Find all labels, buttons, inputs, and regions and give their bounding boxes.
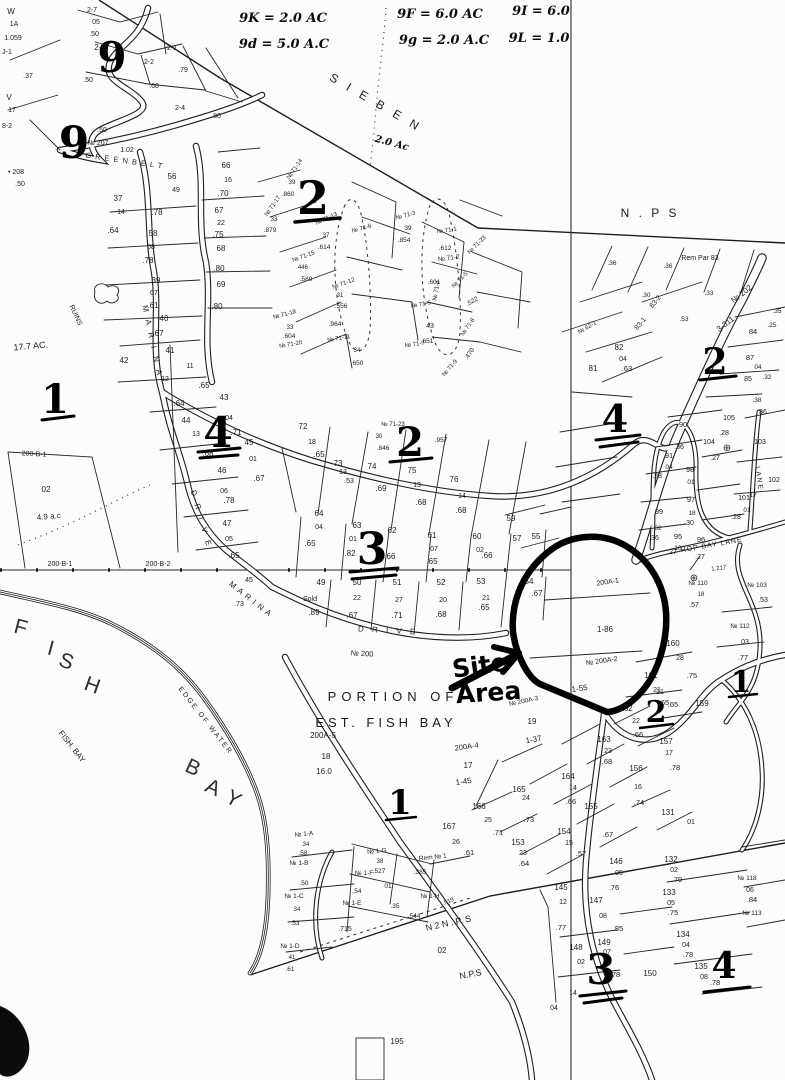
- map-label: 04: [225, 415, 233, 422]
- map-label: 07: [150, 290, 158, 297]
- map-label: 27: [395, 597, 403, 604]
- map-label: .84: [747, 895, 757, 904]
- map-label: 01: [687, 819, 695, 826]
- map-label: 51: [393, 578, 402, 587]
- map-label: 156: [629, 764, 643, 773]
- map-label: № 113: [742, 910, 762, 917]
- map-label: .50: [97, 127, 107, 134]
- map-label: 2.0 Ac: [372, 134, 409, 154]
- map-label: .78: [223, 496, 235, 505]
- map-label: .32: [762, 374, 771, 381]
- map-label: .614: [318, 244, 331, 251]
- map-label: .75: [668, 908, 678, 917]
- map-label: .78: [610, 970, 620, 979]
- map-label: 163: [597, 735, 611, 744]
- map-label: 05: [225, 536, 233, 543]
- map-label: .846: [377, 445, 390, 452]
- map-label: № 71-3: [395, 209, 417, 221]
- map-label: N.P.S: [459, 967, 483, 981]
- map-label: № 1-E: [343, 900, 363, 907]
- map-label: 04: [682, 942, 690, 949]
- map-label: 195: [390, 1037, 404, 1046]
- map-label: 24: [522, 795, 530, 802]
- map-label: 18: [322, 752, 331, 761]
- map-label: 19: [528, 717, 537, 726]
- map-label: 01: [384, 883, 392, 890]
- map-label: .28: [652, 473, 662, 480]
- map-label: .57: [689, 602, 699, 609]
- map-label: № 200: [351, 648, 374, 658]
- map-label: .63: [622, 364, 632, 373]
- map-label: .58: [298, 850, 307, 857]
- map-label: .68: [455, 506, 467, 515]
- map-label: № 1-H: [420, 893, 440, 900]
- map-label: .53: [290, 920, 299, 927]
- map-label: .61: [464, 848, 474, 857]
- map-label: 85: [744, 376, 752, 383]
- map-label: S: [56, 648, 79, 675]
- shoreline-fill: [0, 592, 268, 973]
- map-label: 101: [738, 495, 750, 502]
- map-label: 155: [584, 802, 598, 811]
- map-label: .67: [531, 589, 543, 598]
- map-label: .50: [89, 31, 99, 38]
- map-label: .68: [435, 610, 447, 619]
- map-label: № 1-F: [355, 870, 374, 877]
- map-label: 1-45: [455, 776, 473, 787]
- map-label: 22: [353, 595, 361, 602]
- map-label: .65: [478, 603, 490, 612]
- map-label: 45: [245, 438, 254, 447]
- map-label: 49: [317, 578, 326, 587]
- map-label: 54: [525, 577, 534, 586]
- map-label: .76: [609, 883, 619, 892]
- map-label: J-1: [2, 49, 12, 56]
- map-label: 08: [700, 974, 708, 981]
- map-label: 44: [182, 416, 191, 425]
- map-label: 07: [430, 546, 438, 553]
- map-label: 06: [220, 488, 228, 495]
- map-label: 25: [484, 817, 492, 824]
- map-label: 39: [405, 226, 412, 232]
- map-label: .27: [710, 455, 720, 462]
- map-label: 02: [577, 959, 585, 966]
- map-label: .73: [524, 815, 534, 824]
- map-label: .65: [426, 557, 438, 566]
- map-label: .64: [173, 399, 185, 408]
- map-label: 02: [438, 946, 447, 955]
- map-label: № 1-C: [284, 893, 304, 900]
- map-label: 16: [224, 177, 232, 184]
- map-label: .65: [228, 551, 240, 560]
- map-label: .35: [772, 308, 781, 315]
- map-label: .27: [667, 549, 677, 556]
- map-label: 200-B-1: [48, 561, 73, 568]
- south-boundary-line: [250, 843, 785, 975]
- map-label: 1.02: [120, 147, 134, 154]
- map-label: 64: [315, 509, 324, 518]
- map-label: 16: [634, 784, 642, 791]
- map-label: .28: [719, 430, 729, 437]
- map-label: 159: [695, 699, 709, 708]
- map-label: № 1-D: [280, 943, 300, 950]
- map-label: RUINS: [68, 304, 84, 327]
- map-label: 04: [754, 364, 762, 371]
- map-label: .77: [738, 653, 748, 662]
- map-label: .36: [649, 535, 659, 542]
- map-label: 135: [694, 962, 708, 971]
- map-label: .65: [198, 381, 210, 390]
- map-label: .79: [178, 67, 188, 74]
- map-label: 166: [472, 802, 486, 811]
- map-label: 160: [666, 639, 680, 648]
- map-label: F: [12, 615, 32, 641]
- map-label: 74: [368, 462, 377, 471]
- map-label: 104: [703, 439, 715, 446]
- map-label: .612: [439, 245, 452, 252]
- map-label: .50: [83, 77, 93, 84]
- map-label: 63: [353, 521, 362, 530]
- map-label: Y: [222, 785, 247, 813]
- map-label: 200A-4: [454, 740, 479, 752]
- map-label: .589: [300, 276, 313, 283]
- map-label: 82: [615, 343, 624, 352]
- shoreline: [0, 592, 268, 973]
- map-label: S I E B E N: [327, 70, 425, 134]
- map-label: .385: [414, 869, 427, 876]
- map-label: .68: [415, 498, 427, 507]
- map-label: 17: [665, 750, 673, 757]
- map-label: 2: [702, 341, 727, 383]
- map-label: .35: [390, 903, 399, 910]
- map-label: 41: [166, 346, 175, 355]
- map-label: 1: [41, 376, 69, 423]
- map-label: .556: [335, 303, 348, 310]
- map-label: .33: [704, 290, 713, 297]
- map-label: 9d = 5.0 A.C: [239, 37, 330, 52]
- map-label: .73: [234, 601, 244, 608]
- map-label: 9: [59, 118, 90, 169]
- map-label: .80: [213, 264, 225, 273]
- map-label: 148: [569, 943, 583, 952]
- map-label: .78: [683, 950, 693, 959]
- map-label: 52: [437, 578, 446, 587]
- map-label: .78: [710, 978, 720, 987]
- map-label: 13: [192, 431, 200, 438]
- map-label: 42: [120, 356, 129, 365]
- map-label: .67: [603, 830, 613, 839]
- map-label: 1.059: [4, 35, 22, 42]
- map-label: .38: [752, 397, 761, 404]
- map-label: H: [81, 672, 105, 699]
- map-label: 90: [679, 420, 687, 429]
- map-label: 02: [670, 867, 678, 874]
- map-label: 13: [413, 482, 421, 489]
- map-label: 23: [519, 850, 527, 857]
- map-label: 18: [698, 592, 705, 598]
- map-label: 14: [569, 990, 577, 997]
- map-label: .65: [668, 700, 678, 709]
- map-label: 9I = 6.0: [512, 4, 570, 19]
- survey-map: PORTION OF EST. FISH BAY: [0, 0, 785, 1080]
- map-label: .79: [672, 875, 682, 884]
- map-label: 01: [349, 536, 357, 543]
- map-label: 3: [357, 524, 388, 575]
- map-label: 81: [589, 364, 598, 373]
- map-label: 72: [299, 422, 308, 431]
- map-label: 17.7 AC.: [13, 340, 48, 353]
- map-label: 87: [746, 353, 754, 362]
- map-label: D R I V E: [189, 489, 214, 549]
- map-label: 06: [746, 887, 754, 894]
- map-label: .50: [299, 880, 308, 887]
- map-label: 01: [249, 456, 257, 463]
- map-label: 4.9 a.c: [36, 511, 61, 522]
- map-label: 9F = 6.0 AC: [397, 7, 483, 22]
- drainage-gut-east: [422, 199, 461, 355]
- map-label: 50: [353, 578, 362, 587]
- map-label: 08: [147, 244, 155, 251]
- map-label: № 1-G: [367, 847, 387, 856]
- map-label: 1.217: [711, 565, 727, 573]
- map-label: • 208: [8, 169, 24, 176]
- map-label: 03: [741, 639, 749, 646]
- map-label: HOP BAY LANE: [680, 537, 743, 555]
- map-label: 30: [376, 434, 383, 440]
- map-label: .25: [767, 322, 776, 329]
- map-label: 83-1: [634, 316, 648, 331]
- map-label: 2-2: [144, 59, 154, 66]
- map-label: 8-2: [2, 123, 12, 130]
- map-label: 145: [554, 883, 568, 892]
- map-label: .80: [211, 113, 221, 120]
- map-label: 04: [550, 1005, 558, 1012]
- map-label: 47: [223, 519, 232, 528]
- map-label: .64: [519, 859, 529, 868]
- map-label: .36: [607, 260, 616, 267]
- map-label: 43: [220, 393, 229, 402]
- map-label: № 200A-2: [585, 656, 618, 667]
- map-label: .82: [344, 549, 356, 558]
- map-label: .54: [352, 888, 361, 895]
- map-label: A: [202, 774, 226, 802]
- map-label: 49: [172, 187, 180, 194]
- map-label: 01: [743, 507, 751, 514]
- map-label: 05: [615, 870, 623, 877]
- map-label: № 1-B: [290, 860, 309, 867]
- map-label: № 71-1: [436, 226, 458, 236]
- map-label: .28: [731, 514, 741, 521]
- map-label: 38: [377, 859, 384, 865]
- map-label: 4: [602, 396, 628, 441]
- map-label: .68: [202, 449, 214, 458]
- map-label: 67: [215, 206, 224, 215]
- map-label: № 71-18: [272, 308, 297, 321]
- map-label: .67: [152, 329, 164, 338]
- map-label: 02: [42, 485, 51, 494]
- map-label: .78: [670, 763, 680, 772]
- map-label: 28: [676, 655, 684, 662]
- map-label: 86: [759, 409, 767, 416]
- map-label: 99: [655, 507, 663, 516]
- map-label: .68: [149, 83, 159, 90]
- map-label: V: [6, 93, 12, 102]
- map-label: 15: [565, 840, 573, 847]
- map-label: 132: [664, 855, 678, 864]
- map-label: 16.0: [316, 767, 332, 776]
- map-label: 55: [532, 532, 541, 541]
- map-label: 26: [452, 839, 460, 846]
- map-label: PORTION OF: [328, 689, 459, 704]
- map-label: .522: [465, 295, 480, 308]
- map-label: 2-1: [167, 45, 177, 52]
- map-label: .67: [346, 611, 358, 620]
- map-label: 18: [688, 510, 696, 517]
- map-label: 05: [667, 900, 675, 907]
- map-label: № 103: [747, 582, 767, 589]
- map-label: 98: [686, 465, 694, 474]
- map-label: .61: [147, 301, 159, 310]
- map-label: N . P S: [621, 206, 680, 220]
- scan-artifacts: [0, 1006, 29, 1077]
- map-label: 157: [659, 737, 673, 746]
- map-label: 37: [114, 194, 123, 203]
- map-label: 83-2: [649, 294, 663, 309]
- map-label: .71: [493, 828, 503, 837]
- map-label: .85: [613, 924, 623, 933]
- map-label: 04: [665, 464, 673, 471]
- map-label: .50: [15, 181, 25, 188]
- map-label: .53: [344, 478, 354, 485]
- map-label: 60: [473, 532, 482, 541]
- map-label: 134: [676, 930, 690, 939]
- shoreline-center: [0, 592, 268, 973]
- map-label: .527: [373, 868, 386, 875]
- map-label: 75: [408, 466, 417, 475]
- map-label: D R I V E: [358, 624, 419, 636]
- map-label: № 71-2: [438, 253, 461, 263]
- site-area-outline: [513, 537, 667, 712]
- map-label: .544: [408, 913, 421, 920]
- map-label: .78: [151, 208, 163, 217]
- map-label: .957: [435, 437, 448, 444]
- map-label: 37: [323, 233, 330, 239]
- map-label: .75: [687, 671, 697, 680]
- map-label: .71: [230, 428, 242, 437]
- map-label: .53: [679, 316, 688, 323]
- map-label: 22: [217, 220, 225, 227]
- map-label: № 71-23: [381, 421, 405, 428]
- map-label: 21: [656, 689, 664, 696]
- map-label: .446: [296, 265, 308, 271]
- map-label: 34: [354, 348, 361, 354]
- map-label: .66: [481, 551, 493, 560]
- map-label: I: [45, 637, 59, 661]
- map-label: № 1-A: [294, 830, 314, 839]
- map-label: Rem Par 83: [681, 255, 718, 262]
- map-label: .36: [674, 444, 684, 451]
- map-label: № 62-1: [577, 319, 598, 335]
- map-label: № 71-23: [466, 234, 488, 256]
- map-label: .89: [308, 608, 320, 617]
- map-label: 200A-1: [596, 577, 619, 587]
- map-label: № 110: [688, 580, 708, 587]
- corner-ink-blob: [0, 1006, 29, 1077]
- map-label: 39: [289, 180, 296, 186]
- map-label: 20: [439, 597, 447, 604]
- map-label: .65: [313, 450, 325, 459]
- map-label: 66: [222, 161, 231, 170]
- map-label: 96: [697, 535, 705, 544]
- map-label: .65: [304, 539, 316, 548]
- map-label: 17: [8, 107, 16, 114]
- map-label: 84: [749, 327, 757, 336]
- map-label: .66: [566, 797, 576, 806]
- map-label: 43: [426, 323, 434, 330]
- parcel-lines: [8, 10, 785, 1080]
- roads: [60, 8, 785, 1080]
- map-label: № 71-20: [279, 339, 304, 350]
- map-label: .37: [23, 73, 33, 80]
- map-label: № 207: [87, 140, 108, 147]
- map-label: .30: [684, 520, 694, 527]
- map-label: .30: [641, 292, 650, 299]
- map-label: .854: [398, 237, 411, 244]
- stamp-box: [356, 1038, 384, 1080]
- map-label: 18: [308, 439, 316, 446]
- map-label: .70: [217, 189, 229, 198]
- map-label: 41: [289, 955, 296, 961]
- quad-left-small: [8, 452, 120, 568]
- map-label: 34: [294, 907, 301, 913]
- map-label: № 71-8: [459, 316, 477, 337]
- map-label: 1: [388, 783, 412, 823]
- map-label: 1: [731, 665, 752, 700]
- map-label: 105: [723, 415, 735, 422]
- map-label: .69: [375, 484, 387, 493]
- map-label: .66: [633, 730, 643, 739]
- map-label: Sold: [303, 596, 317, 603]
- map-label: 153: [511, 838, 525, 847]
- map-label: .36: [663, 263, 672, 270]
- map-label: EST. FISH BAY: [315, 715, 456, 730]
- map-label: 103: [754, 439, 766, 446]
- map-label: .27: [695, 554, 705, 561]
- map-label: № 71-6: [410, 299, 432, 310]
- map-label: 2-6: [94, 43, 106, 52]
- map-label: № 71-15: [291, 249, 316, 264]
- map-label: 1-86: [597, 625, 614, 634]
- map-label: .80: [211, 302, 223, 311]
- map-label: 07: [603, 949, 611, 956]
- map-label: 9g = 2.0 A.C: [399, 33, 490, 48]
- map-label: 33: [271, 217, 278, 223]
- map-label: 53: [477, 577, 486, 586]
- map-label: .53: [758, 597, 768, 604]
- map-label: FISH. BAY: [57, 729, 88, 765]
- map-label: 165: [512, 785, 526, 794]
- map-label: .879: [264, 227, 277, 234]
- map-label: 164: [561, 772, 575, 781]
- map-label: № 118: [737, 875, 757, 882]
- map-label: .71: [391, 611, 403, 620]
- map-label: 95: [674, 532, 682, 541]
- map-label: № 71-9: [441, 358, 460, 378]
- map-label: 162: [619, 704, 633, 713]
- map-label: 01: [687, 479, 695, 486]
- map-label: 13: [339, 469, 347, 476]
- map-label: .68: [602, 757, 612, 766]
